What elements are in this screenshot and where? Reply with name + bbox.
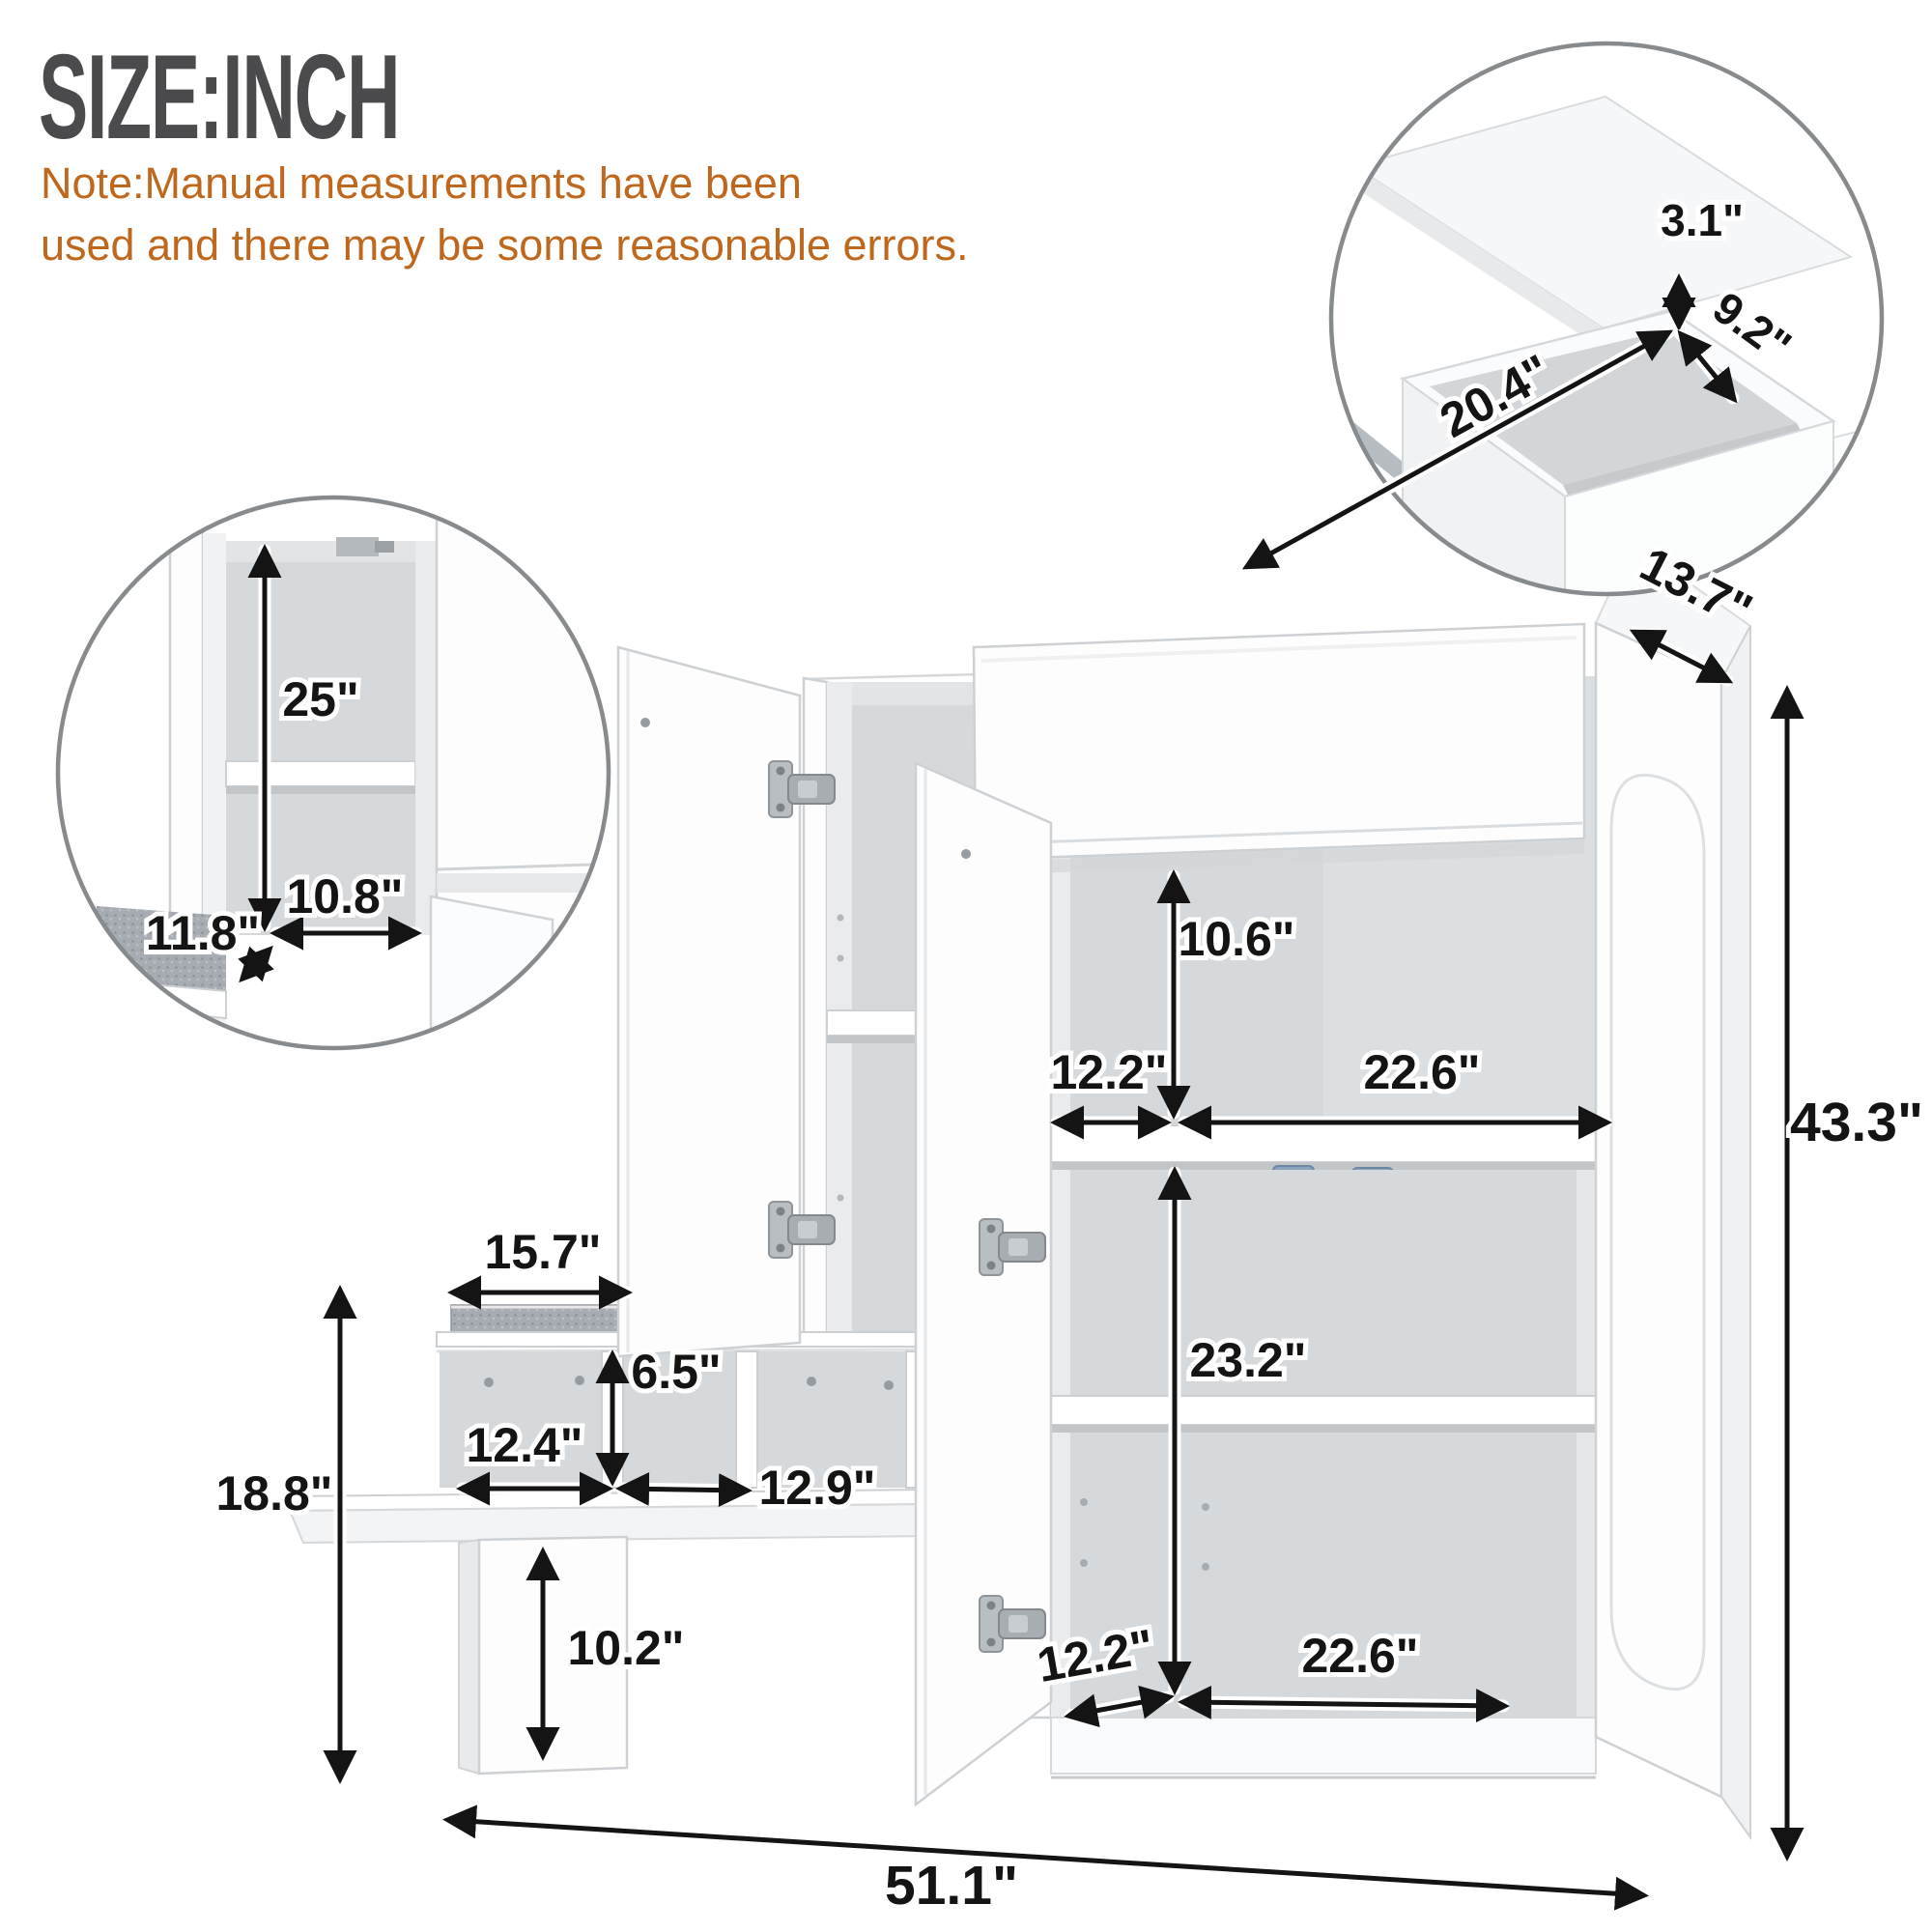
inset-width-label: 10.8" [286,869,403,923]
dim-bench-height-label: 18.8" [215,1466,332,1520]
left-door-screw [640,718,650,727]
lower-cabinet-shelf [1051,1396,1596,1425]
dim-height-label: 43.3" [1790,1092,1923,1153]
upper-opening-ledge-shadow [1051,1162,1596,1170]
inset-top-hinge-arm [375,541,394,553]
middle-door [916,763,1051,1804]
lower-cabinet-shelf-shadow [1051,1425,1596,1433]
inset-right-shelf-shade [437,873,620,893]
cubby-divider-right [736,1351,757,1488]
inset-shelf [226,761,415,786]
dim-cubby-right-arrow [622,1489,746,1491]
dim-lower-right-label: 22.6" [1301,1629,1418,1683]
dim-seat-label: 15.7" [484,1225,601,1279]
dim-width-arrow [449,1820,1642,1895]
tower-side-panel [1721,626,1750,1837]
inset-shelf-shadow [226,786,415,794]
inset-height-label: 25" [282,672,358,726]
diagram-svg: 25" 10.8" 11.8" [0,0,1932,1932]
dim-upper-opening-label: 10.6" [1178,912,1294,966]
right-tower [1596,543,1750,1837]
dim-cubby-right-label: 12.9" [758,1461,875,1515]
dim-cubby-left-label: 12.4" [466,1418,582,1472]
left-door [618,647,835,1356]
top-drawer [974,624,1584,875]
dim-lower-opening-label: 23.2" [1189,1333,1306,1387]
middle-door-screw [961,849,971,859]
dim-cubby-height-label: 6.5" [631,1345,721,1399]
inset-depth-label: 11.8" [146,906,260,960]
dim-upper-left-label: 12.2" [1050,1045,1167,1099]
dim-upper-right-label: 22.6" [1363,1045,1480,1099]
plinth [1051,1718,1596,1774]
dim-leg-label: 10.2" [567,1621,684,1675]
bench-leg-side [459,1540,479,1774]
inset-top-hinge [336,537,379,556]
lower-cabinet [1051,1170,1596,1777]
upper-opening-ledge [1051,1125,1596,1162]
inset-drawer-circle: 20.4" 3.1" 9.2" [1248,43,1884,641]
inset-cabinet-circle: 25" 10.8" 11.8" [58,491,620,1053]
inset-right-wall [415,541,437,935]
lower-cabinet-right-wall [1577,1170,1596,1718]
inset-drawer-gap-label: 3.1" [1661,195,1744,245]
inset-small-door [431,896,553,1053]
bench-cushion [451,1305,630,1332]
size-chart-image: SIZE:INCH Note:Manual measurements have … [0,0,1932,1932]
dim-width-label: 51.1" [885,1855,1018,1917]
carcass-top-edge [804,674,980,679]
inset-small-door-hinge [529,968,545,993]
